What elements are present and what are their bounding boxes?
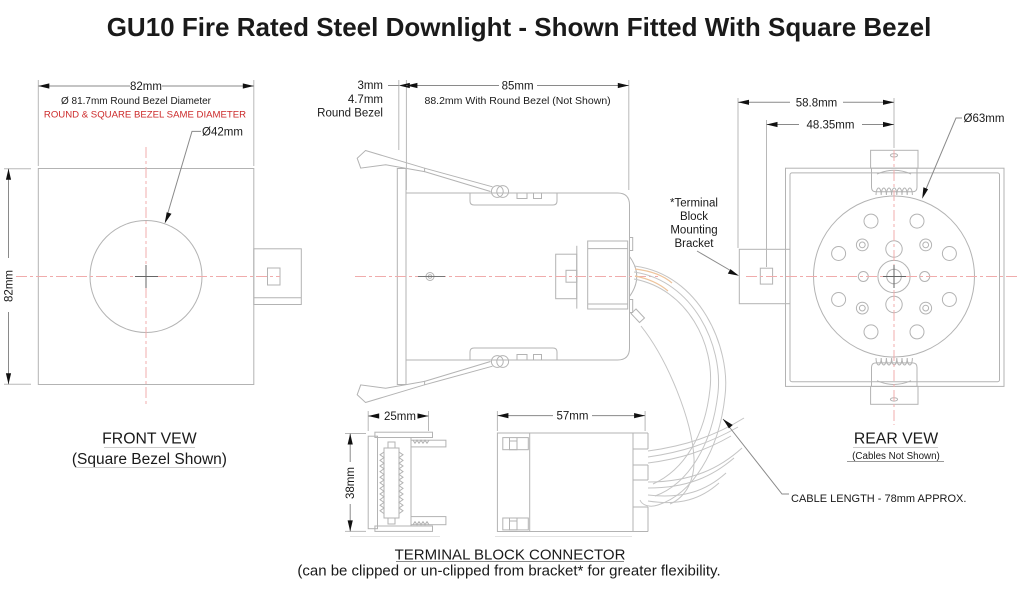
svg-text:ROUND & SQUARE BEZEL SAME DIAM: ROUND & SQUARE BEZEL SAME DIAMETER (44, 110, 246, 121)
svg-text:Ø42mm: Ø42mm (202, 127, 243, 139)
svg-text:GU10 Fire Rated Steel Downligh: GU10 Fire Rated Steel Downlight - Shown … (107, 12, 932, 42)
svg-text:48.35mm: 48.35mm (807, 120, 855, 132)
svg-text:82mm: 82mm (4, 270, 16, 302)
svg-text:TERMINAL BLOCK CONNECTOR: TERMINAL BLOCK CONNECTOR (395, 547, 626, 564)
svg-text:(Square Bezel Shown): (Square Bezel Shown) (72, 451, 227, 468)
svg-text:Mounting: Mounting (670, 225, 717, 237)
svg-text:82mm: 82mm (130, 81, 162, 93)
svg-text:57mm: 57mm (557, 411, 589, 423)
svg-text:4.7mm: 4.7mm (348, 94, 383, 106)
svg-text:(Cables Not Shown): (Cables Not Shown) (852, 451, 940, 462)
svg-text:Round Bezel: Round Bezel (317, 108, 383, 120)
svg-text:CABLE LENGTH - 78mm APPROX.: CABLE LENGTH - 78mm APPROX. (791, 493, 966, 505)
svg-text:Bracket: Bracket (675, 238, 715, 250)
svg-text:38mm: 38mm (345, 467, 357, 499)
svg-text:Ø 81.7mm Round Bezel Diameter: Ø 81.7mm Round Bezel Diameter (61, 96, 212, 107)
svg-text:88.2mm With Round Bezel (Not S: 88.2mm With Round Bezel (Not Shown) (425, 95, 611, 107)
svg-text:25mm: 25mm (384, 411, 416, 423)
svg-text:*Terminal: *Terminal (670, 198, 718, 210)
svg-text:REAR VEW: REAR VEW (854, 431, 938, 448)
svg-text:58.8mm: 58.8mm (796, 97, 838, 109)
svg-text:(can be clipped or un-clipped: (can be clipped or un-clipped from brack… (297, 563, 720, 580)
svg-text:3mm: 3mm (357, 80, 383, 92)
svg-text:Ø63mm: Ø63mm (964, 113, 1005, 125)
svg-text:85mm: 85mm (502, 81, 534, 93)
svg-text:FRONT VEW: FRONT VEW (102, 431, 197, 448)
svg-text:Block: Block (680, 211, 708, 223)
